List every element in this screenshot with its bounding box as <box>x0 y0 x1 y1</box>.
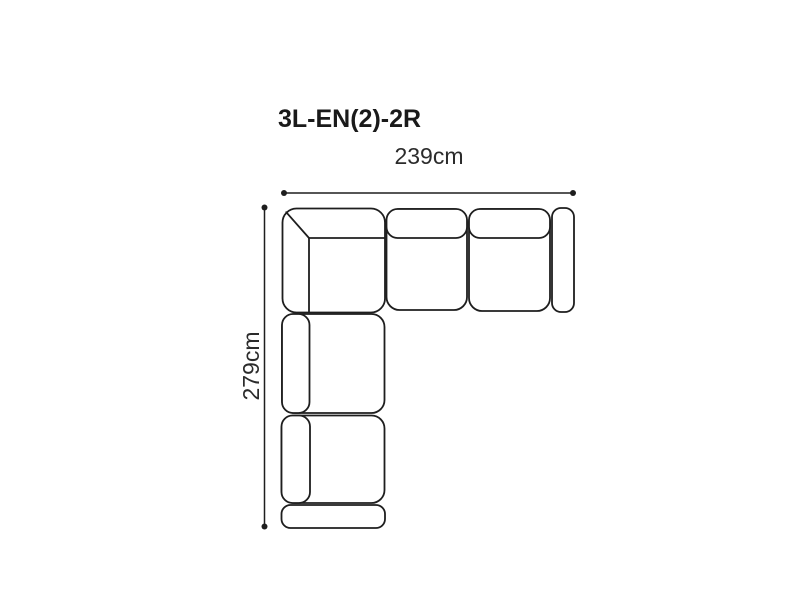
right-armrest <box>552 208 574 312</box>
depth-dimension-line <box>262 205 268 530</box>
left-seat-cushion-1-backrest <box>282 314 310 413</box>
left-seat-cushion-1 <box>282 314 385 413</box>
width-dimension-line <box>281 190 576 196</box>
corner-section <box>283 209 386 313</box>
left-seat-cushion-2 <box>282 416 385 504</box>
top-seat-cushion-2-backrest <box>469 209 550 238</box>
top-seat-cushion-1 <box>387 209 468 310</box>
width-dimension-endpoint-left <box>281 190 287 196</box>
sofa-outline <box>282 208 575 528</box>
top-seat-cushion-2 <box>469 209 550 311</box>
sofa-top-view-drawing <box>0 0 800 600</box>
top-seat-cushion-1-backrest <box>387 209 468 238</box>
left-seat-cushion-2-backrest <box>282 416 311 504</box>
depth-dimension-endpoint-top <box>262 205 268 211</box>
bottom-armrest <box>282 505 386 528</box>
sofa-dimension-diagram: 3L-EN(2)-2R 239cm 279cm <box>0 0 800 600</box>
width-dimension-endpoint-right <box>570 190 576 196</box>
depth-dimension-endpoint-bottom <box>262 524 268 530</box>
